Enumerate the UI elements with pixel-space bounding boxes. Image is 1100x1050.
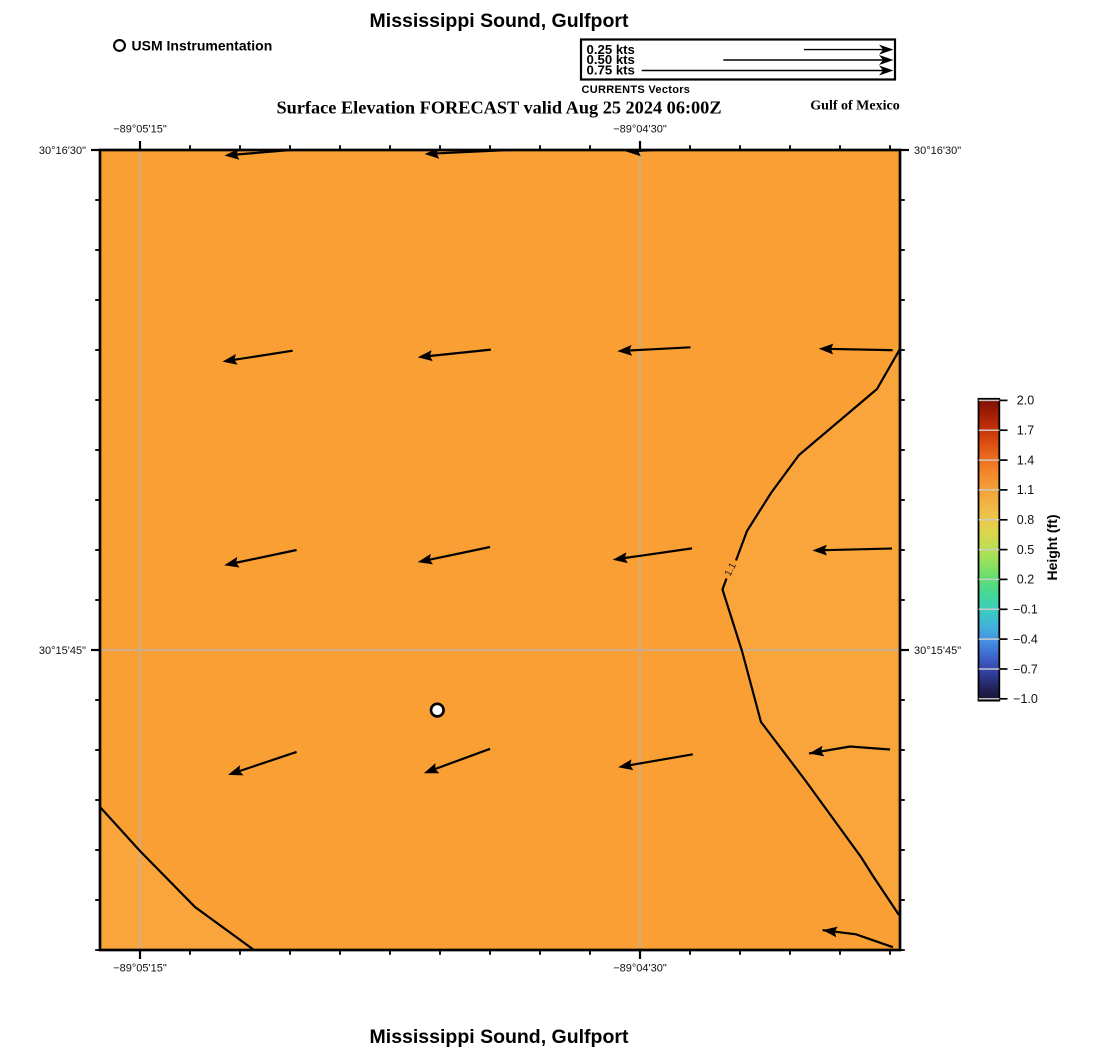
svg-text:Surface Elevation FORECAST val: Surface Elevation FORECAST valid Aug 25 …	[276, 98, 721, 118]
svg-text:0.75 kts: 0.75 kts	[587, 63, 635, 78]
svg-text:1.4: 1.4	[1017, 453, 1034, 467]
svg-text:30°16'30": 30°16'30"	[39, 145, 86, 157]
svg-text:−89°05'15": −89°05'15"	[113, 124, 167, 136]
svg-text:−89°04'30": −89°04'30"	[613, 963, 667, 975]
svg-text:−1.0: −1.0	[1013, 692, 1038, 706]
svg-text:Mississippi Sound, Gulfport: Mississippi Sound, Gulfport	[370, 1026, 629, 1048]
svg-text:2.0: 2.0	[1017, 394, 1034, 408]
svg-text:USM Instrumentation: USM Instrumentation	[132, 38, 273, 54]
svg-text:−0.1: −0.1	[1013, 603, 1038, 617]
svg-text:CURRENTS Vectors: CURRENTS Vectors	[582, 84, 691, 96]
svg-text:−0.4: −0.4	[1013, 632, 1038, 646]
svg-text:1.1: 1.1	[1017, 483, 1034, 497]
svg-text:−89°04'30": −89°04'30"	[613, 124, 667, 136]
svg-text:Gulf of Mexico: Gulf of Mexico	[810, 99, 899, 114]
svg-text:30°15'45": 30°15'45"	[914, 645, 961, 657]
svg-text:0.5: 0.5	[1017, 543, 1034, 557]
svg-text:0.2: 0.2	[1017, 573, 1034, 587]
svg-text:Height (ft): Height (ft)	[1044, 514, 1060, 580]
svg-text:30°15'45": 30°15'45"	[39, 645, 86, 657]
svg-text:30°16'30": 30°16'30"	[914, 145, 961, 157]
svg-text:−0.7: −0.7	[1013, 662, 1038, 676]
svg-text:0.8: 0.8	[1017, 513, 1034, 527]
svg-text:−89°05'15": −89°05'15"	[113, 963, 167, 975]
svg-text:Mississippi Sound, Gulfport: Mississippi Sound, Gulfport	[370, 10, 629, 32]
svg-text:1.7: 1.7	[1017, 424, 1034, 438]
